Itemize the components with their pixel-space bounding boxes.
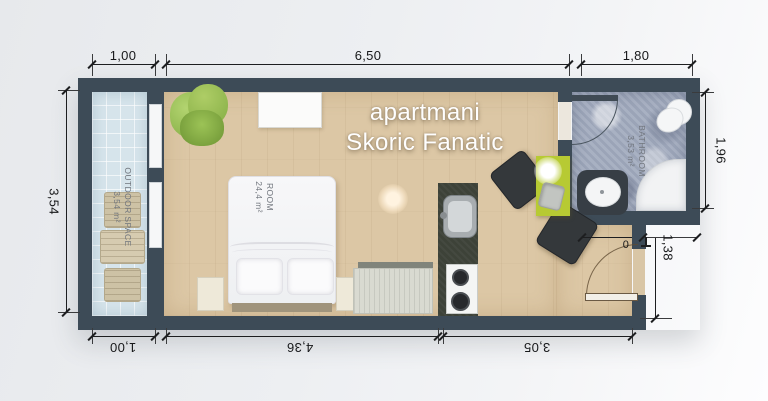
dimension-line (705, 92, 706, 208)
dimension-value-bottom-right: 3,05 (507, 340, 567, 355)
dimension-value-bottom-left: 1,00 (93, 340, 153, 355)
door-dimension-fragment: 0 (619, 239, 633, 251)
table-lamp-glow (534, 157, 562, 185)
room-name: ROOM (264, 167, 275, 227)
watermark: apartmani Skoric Fanatic (285, 98, 565, 158)
dimension-value-top-middle: 6,50 (338, 48, 398, 63)
tick-mark-base (641, 245, 651, 247)
stove-burner (451, 292, 470, 311)
entry-door-leaf (585, 293, 638, 301)
kitchen-faucet (440, 212, 447, 219)
stove-burner (452, 269, 469, 286)
dimension-value-left: 3,54 (47, 182, 62, 222)
sliding-door-pane (149, 182, 162, 248)
dimension-value-top-right: 1,80 (606, 48, 666, 63)
outdoor-space-name: OUTDOOR SPACE (122, 167, 133, 247)
nightstand (197, 277, 224, 311)
dimension-line (166, 336, 438, 337)
outdoor-chair (104, 268, 141, 302)
dimension-value-right-lower: 1,38 (661, 228, 676, 268)
tick-mark-stem (645, 237, 647, 245)
dimension-line (655, 237, 656, 318)
ceiling-lamp-glow (378, 184, 408, 214)
kitchen-sink-basin (448, 201, 472, 232)
wardrobe (353, 268, 433, 314)
extension-line (58, 90, 80, 91)
dimension-tick-mark (641, 237, 651, 247)
plant (170, 84, 232, 148)
pillow (287, 258, 334, 295)
plant-foliage (180, 110, 224, 146)
dimension-value-bottom-middle: 4,36 (270, 340, 330, 355)
dimension-value-right-upper: 1,96 (714, 131, 729, 171)
room-area: 24,4 m² (253, 167, 264, 227)
wall-left (78, 90, 92, 330)
outdoor-space-area: 3,54 m² (111, 167, 122, 247)
dimension-line (92, 336, 156, 337)
dimension-line (581, 64, 692, 65)
dimension-line (166, 64, 569, 65)
bathroom-area: 3,53 m² (625, 116, 636, 186)
watermark-line2: Skoric Fanatic (285, 128, 565, 158)
watermark-line1: apartmani (285, 98, 565, 128)
outdoor-space-label: OUTDOOR SPACE 3,54 m² (111, 167, 133, 247)
pillow (236, 258, 283, 295)
bathroom-label: BATHROOM 3,53 m² (625, 116, 647, 186)
bathroom-sink-drain (600, 190, 604, 194)
sliding-door-pane (149, 104, 162, 168)
bed-fold-line (232, 249, 332, 256)
dimension-line (443, 336, 633, 337)
extension-line (58, 312, 80, 313)
room-label: ROOM 24,4 m² (253, 167, 275, 227)
bathroom-name: BATHROOM (636, 116, 647, 186)
dimension-line (92, 64, 156, 65)
wall-bottom (78, 316, 646, 330)
bed-headboard (232, 303, 332, 312)
dimension-value-top-left: 1,00 (93, 48, 153, 63)
dimension-line (582, 237, 632, 238)
dimension-line (66, 90, 67, 312)
floor-plan-canvas: OUTDOOR SPACE 3,54 m² ROOM 24,4 m² BATHR… (0, 0, 768, 401)
bathroom-door-leaf (572, 95, 618, 101)
